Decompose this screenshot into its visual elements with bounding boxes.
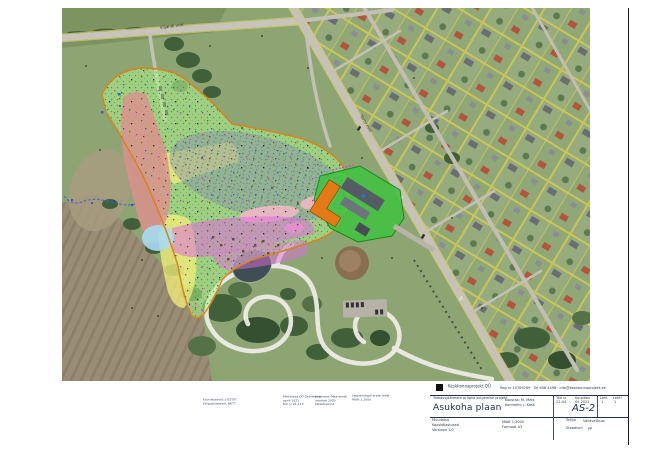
company-info: Reg nr 10769769 · Tel 656 4498 · info@ke… xyxy=(500,386,606,391)
parking-lot xyxy=(343,299,388,318)
left-note-1: Muudatus xyxy=(432,418,449,423)
grid-value-3: 1 xyxy=(601,400,603,405)
drawing-frame-line xyxy=(628,8,629,445)
titleblock-divider-1 xyxy=(553,395,554,440)
drawing-page: Viljandi mnt Tartu mnt Koordinaadid: L-E… xyxy=(0,0,650,459)
client-label: Tellija xyxy=(566,418,576,423)
grid-value-4: 1 xyxy=(614,400,616,405)
site-plan-map: Viljandi mnt Tartu mnt xyxy=(62,8,590,381)
left-note-2: Kooskõlastused xyxy=(432,423,459,428)
bottom-note-1: Mõõt 1:2000 xyxy=(502,420,524,425)
company-name: Keskkonnaprojekt OÜ xyxy=(448,384,491,389)
grid-value-1: 21-04 xyxy=(556,400,566,405)
project-name: Tööstusjäätmete prügila sulgemise projek… xyxy=(433,396,507,401)
stage-label: Staadium xyxy=(566,426,583,431)
left-note-3: Versioon 1.0 xyxy=(432,428,454,433)
company-logo xyxy=(436,384,443,391)
footnote-block-1: Koordinaadid: L-EST97 Kõrgussüsteem: BK7… xyxy=(203,398,237,406)
titleblock-rule-2 xyxy=(430,417,628,418)
center-note-1: Koostas: M. Mets xyxy=(505,398,534,403)
sheet-number: AS-2 xyxy=(572,403,595,414)
bottom-note-2: Formaat A3 xyxy=(502,425,522,430)
map-viewport: Viljandi mnt Tartu mnt xyxy=(62,8,590,381)
stage-value: PP xyxy=(588,427,592,432)
footnote-block-4: Leppemärgid eraldi lehel Mõõt 1:2000 xyxy=(352,394,389,402)
client-value: Vallavalitsus xyxy=(583,419,605,424)
drawing-title: Asukoha plaan xyxy=(433,403,502,413)
center-note-2: Kontrollis: J. Kask xyxy=(505,403,535,408)
titleblock-divider-2 xyxy=(597,395,598,417)
footnote-block-3: Aluskaart: Maa-ameti ortofoto 2020 katas… xyxy=(315,395,347,406)
